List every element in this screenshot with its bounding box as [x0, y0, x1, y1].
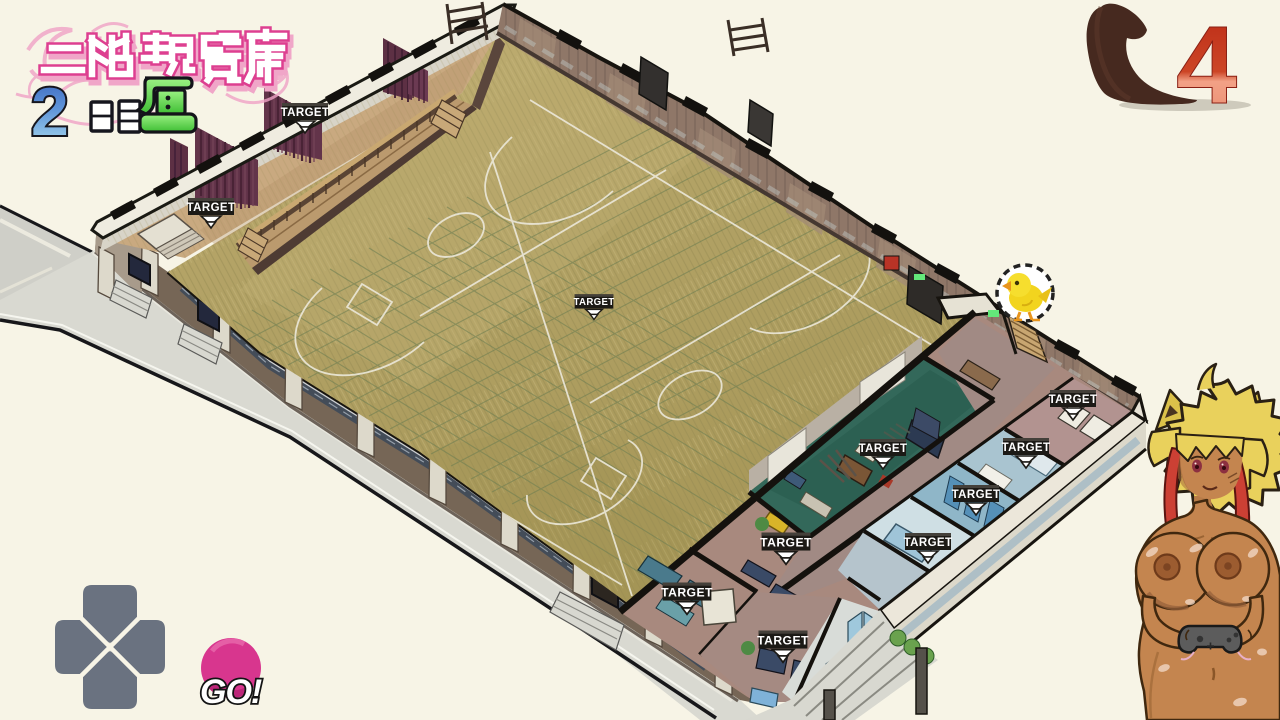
svg-text:GO!: GO! — [200, 673, 262, 711]
svg-text:4: 4 — [1176, 4, 1237, 127]
svg-text:2: 2 — [31, 74, 67, 150]
